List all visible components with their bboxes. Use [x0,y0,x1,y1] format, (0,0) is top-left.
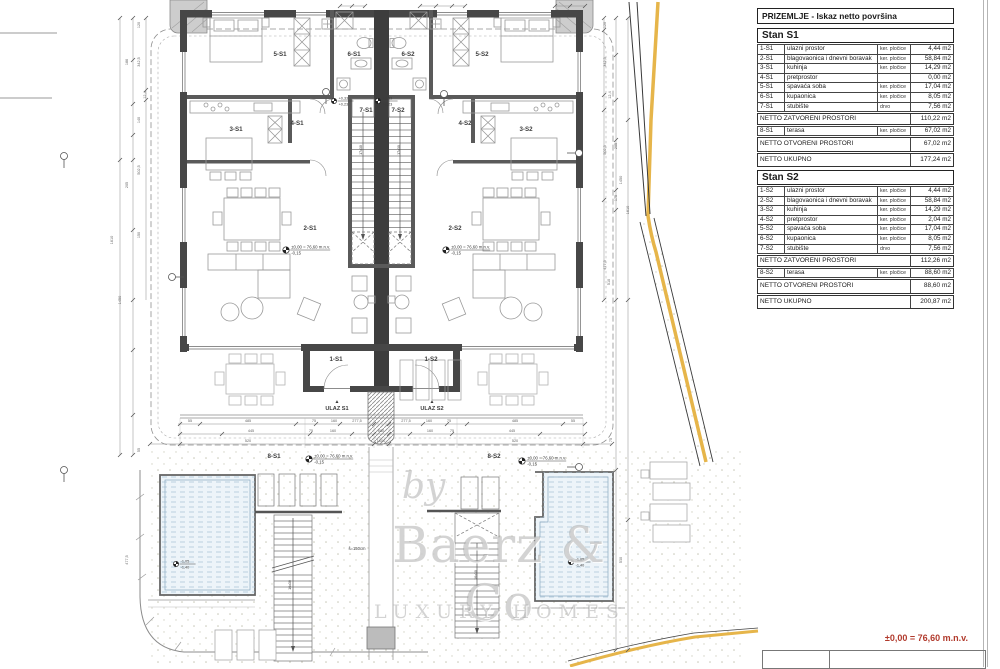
elevation-value: -0,15 [291,251,301,256]
dimension-number: 277,5 [352,419,362,423]
room-label: 7-S2 [391,107,405,114]
area-table-stan-s2: Stan S21-S2ulazni prostorker. pločice4,4… [757,170,954,309]
elevation-value: +0,33 [383,97,393,101]
room-area: 7,56 m2 [911,103,953,112]
room-area: 4,44 m2 [911,45,953,54]
room-name: pretprostor [785,74,878,83]
entry-label: ▲ [430,399,435,405]
room-material: ker. pločice [878,269,911,278]
dimension-number: 55 [188,419,192,423]
pool-right [528,472,625,608]
dimension-number: 120 [603,22,607,28]
area-table-row: 3-S2kuhinjaker. pločice14,29 m2 [757,206,954,216]
room-material: ker. pločice [878,216,911,225]
dimension-number: 75 [309,429,313,433]
room-area: 14,29 m2 [911,206,953,215]
room-id: 5-S1 [758,83,785,92]
dimension-number: 510 [619,557,623,563]
room-name: stubište [785,103,878,112]
area-table-row: 5-S1spavaća sobaker. pločice17,04 m2 [757,83,954,93]
dimension-number: 55 [571,419,575,423]
dimension-number: 75 [447,419,451,423]
room-name: blagovaonica i dnevni boravak [785,55,878,64]
dimension-number: 205 [125,182,129,188]
room-id: 4-S2 [758,216,785,225]
dimension-number: 186 [125,59,129,65]
elevation-value: ±0,00 = 76,60 m.n.v. [314,454,353,459]
room-label: 1-S1 [329,356,343,363]
stan-title: Stan S1 [757,28,954,43]
room-name: kupaonica [785,93,878,102]
area-table-row: 6-S1kupaonicaker. pločice8,05 m2 [757,93,954,103]
room-area: 88,60 m2 [911,269,953,278]
room-id: 2-S2 [758,197,785,206]
room-name: kupaonica [785,235,878,244]
sum-area: 110,22 m2 [910,114,953,124]
room-label: 1-S2 [424,356,438,363]
elevation-value: -0,15 [451,251,461,256]
unit-s1-graphics [170,0,383,418]
room-label: 8-S2 [487,453,501,460]
room-label: 2-S2 [448,225,462,232]
loungers-bottom-left [215,630,276,660]
entry-label: 17x30 [359,145,363,155]
area-summary-panel: PRIZEMLJE - Iskaz netto površina Stan S1… [757,8,954,24]
sum-area: 67,02 m2 [910,138,953,151]
area-table-row: 6-S2kupaonicaker. pločice8,05 m2 [757,235,954,245]
room-area: 67,02 m2 [911,127,953,136]
area-table-row: 1-S2ulazni prostorker. pločice4,44 m2 [757,186,954,197]
room-name: stubište [785,245,878,254]
room-material: ker. pločice [878,197,911,206]
room-material: ker. pločice [878,83,911,92]
room-label: 4-S1 [290,120,304,127]
room-label: 2-S1 [303,225,317,232]
dimension-number: 520 [245,439,251,443]
elevation-value: -1,05 [576,558,585,562]
pool-left [148,475,255,607]
room-area: 14,29 m2 [911,64,953,73]
elevation-value: -0,15 [314,460,324,465]
dimension-number: 1450 [619,176,623,184]
dimension-number: 140 [137,117,141,123]
netto-total-row: NETTO UKUPNO200,87 m2 [757,295,954,310]
dimension-number: 175 [614,195,618,201]
area-table-row: 4-S2pretprostorker. pločice2,04 m2 [757,216,954,226]
room-material: ker. pločice [878,187,911,196]
dimension-number: 1610 [626,206,630,214]
survey-point-markers [61,89,583,483]
room-area: 58,84 m2 [911,197,953,206]
dimension-number: 1610 [110,236,114,244]
unit-s2-graphics [380,0,593,418]
room-name: blagovaonica i dnevni boravak [785,197,878,206]
dimension-number: 150 [137,232,141,238]
entry-label: 17x30 [397,145,401,155]
dimension-number: 75 [450,429,454,433]
room-label: 3-S2 [519,126,533,133]
dimension-number: 1600 [377,439,385,443]
netto-total-row: NETTO UKUPNO177,24 m2 [757,153,954,168]
room-label: 7-S1 [359,107,373,114]
area-table-row: 3-S1kuhinjaker. pločice14,29 m2 [757,64,954,74]
room-name: terasa [785,127,878,136]
room-id: 8-S2 [758,269,785,278]
dimension-number: 502,5 [603,145,607,155]
sum-label: NETTO ZATVORENI PROSTORI [758,114,910,124]
dimension-number: 520 [512,439,518,443]
room-name: spavaća soba [785,83,878,92]
room-name: kuhinja [785,64,878,73]
drawing-sheet: { "panel": { "title": "PRIZEMLJE - Iskaz… [0,0,1000,667]
page-fold-line [983,0,988,667]
room-id: 1-S2 [758,187,785,196]
dimension-number: 12,4 [608,91,612,98]
entry-label: 16x30 [288,580,292,590]
dimension-number: 477,5 [603,260,607,270]
stan-title: Stan S2 [757,170,954,185]
entry-label: 16x30 [474,570,478,580]
sum-label: NETTO OTVORENI PROSTORI [758,138,910,151]
elevation-note: ±0,00 = 76,60 m.n.v. [885,633,968,643]
room-id: 2-S1 [758,55,785,64]
elevation-value: +0,23 [383,103,393,107]
room-area: 0,00 m2 [911,74,953,83]
entry-label: š=150cm [348,546,366,551]
netto-open-row: NETTO OTVORENI PROSTORI88,60 m2 [757,279,954,294]
dimension-number: 342,5 [603,57,607,67]
dimension-number: 1450 [118,296,122,304]
sum-label: NETTO UKUPNO [758,296,910,309]
sum-area: 112,26 m2 [910,256,953,266]
area-table-row: 4-S1pretprostor0,00 m2 [757,74,954,84]
dimension-number: 160 [331,419,337,423]
room-material: ker. pločice [878,93,911,102]
room-material: ker. pločice [878,127,911,136]
dimension-number: 160 [330,429,336,433]
room-material: drvo [878,103,911,112]
room-label: 5-S1 [273,51,287,58]
room-label: 3-S1 [229,126,243,133]
room-name: spavaća soba [785,225,878,234]
area-table-row: 5-S2spavaća sobaker. pločice17,04 m2 [757,225,954,235]
room-area: 17,04 m2 [911,83,953,92]
dimension-number: 502,5 [137,165,141,175]
room-name: terasa [785,269,878,278]
room-area: 8,05 m2 [911,93,953,102]
room-area: 7,56 m2 [911,245,953,254]
elevation-value: -1,40 [181,566,190,570]
area-table-row: 7-S2stubištedrvo7,56 m2 [757,245,954,255]
room-area: 58,84 m2 [911,55,953,64]
room-material: ker. pločice [878,225,911,234]
elevation-value: ±0,00 = 76,60 m.n.v. [451,245,490,250]
elevation-value: ±0,00 = 76,60 m.n.v. [527,456,566,461]
netto-closed-row: NETTO ZATVORENI PROSTORI110,22 m2 [757,113,954,125]
area-table-row: 2-S1blagovaonica i dnevni boravakker. pl… [757,55,954,65]
room-label: 6-S2 [401,51,415,58]
room-id: 3-S2 [758,206,785,215]
sum-label: NETTO OTVORENI PROSTORI [758,280,910,293]
area-table-row: 7-S1stubištedrvo7,56 m2 [757,103,954,113]
entry-label: ULAZ S1 [325,406,348,412]
dimension-number: 485 [245,419,251,423]
area-table-row: 8-S2terasaker. pločice88,60 m2 [757,268,954,279]
room-area: 17,04 m2 [911,225,953,234]
elevation-value: +0,23 [339,103,349,107]
area-table-row: 8-S1terasaker. pločice67,02 m2 [757,126,954,137]
dimension-number: 160 [427,429,433,433]
room-id: 4-S1 [758,74,785,83]
dimension-number: 680 [378,429,384,433]
room-id: 5-S2 [758,225,785,234]
sum-area: 177,24 m2 [910,154,953,167]
room-material: ker. pločice [878,206,911,215]
room-label: 4-S2 [458,120,472,127]
room-id: 6-S1 [758,93,785,102]
title-block-divider [829,651,830,668]
dimension-number: 120 [137,22,141,28]
room-material: ker. pločice [878,45,911,54]
room-material: ker. pločice [878,55,911,64]
dimension-number: 75 [312,419,316,423]
room-area: 8,05 m2 [911,235,953,244]
dimension-number: 12,4 [143,91,147,98]
sum-area: 200,87 m2 [910,296,953,309]
dimension-number: 75 [609,438,613,442]
area-table-row: 1-S1ulazni prostorker. pločice4,44 m2 [757,44,954,55]
elevation-value: +0,33 [339,97,349,101]
dimension-number: 277,5 [401,419,411,423]
room-id: 6-S2 [758,235,785,244]
room-material: drvo [878,245,911,254]
netto-closed-row: NETTO ZATVORENI PROSTORI112,26 m2 [757,255,954,267]
netto-open-row: NETTO OTVORENI PROSTORI67,02 m2 [757,137,954,152]
room-label: 5-S2 [475,51,489,58]
room-id: 7-S2 [758,245,785,254]
room-name: ulazni prostor [785,187,878,196]
room-label: 8-S1 [267,453,281,460]
sum-label: NETTO UKUPNO [758,154,910,167]
title-block [762,650,986,669]
sum-label: NETTO ZATVORENI PROSTORI [758,256,910,266]
elevation-value: ±0,00 = 76,60 m.n.v. [291,245,330,250]
area-table-stan-s1: Stan S11-S1ulazni prostorker. pločice4,4… [757,28,954,167]
panel-title: PRIZEMLJE - Iskaz netto površina [757,8,954,24]
room-material: ker. pločice [878,64,911,73]
room-label: 6-S1 [347,51,361,58]
room-area: 2,04 m2 [911,216,953,225]
room-area: 4,44 m2 [911,187,953,196]
room-id: 7-S1 [758,103,785,112]
neighbour-lines [0,33,57,98]
sum-area: 88,60 m2 [910,280,953,293]
dimension-number: 445 [509,429,515,433]
area-table-row: 2-S2blagovaonica i dnevni boravakker. pl… [757,197,954,207]
entry-label: ▲ [335,399,340,405]
room-id: 8-S1 [758,127,785,136]
elevation-value: -0,15 [527,462,537,467]
room-name: pretprostor [785,216,878,225]
dimension-number: 477,5 [125,555,129,565]
room-id: 3-S1 [758,64,785,73]
dimension-number: 342,5 [137,57,141,67]
elevation-value: -1,40 [576,564,585,568]
dimension-number: 55 [137,448,141,452]
elevation-value: -1,05 [181,560,190,564]
dimension-number: 510 [607,279,611,285]
dimension-number: 485 [512,419,518,423]
dimension-number: 205 [614,143,618,149]
room-name: kuhinja [785,206,878,215]
dimension-number: 445 [248,429,254,433]
room-id: 1-S1 [758,45,785,54]
dimension-number: 160 [426,419,432,423]
room-material: ker. pločice [878,235,911,244]
entry-label: ULAZ S2 [420,406,443,412]
room-name: ulazni prostor [785,45,878,54]
room-material [878,74,911,83]
